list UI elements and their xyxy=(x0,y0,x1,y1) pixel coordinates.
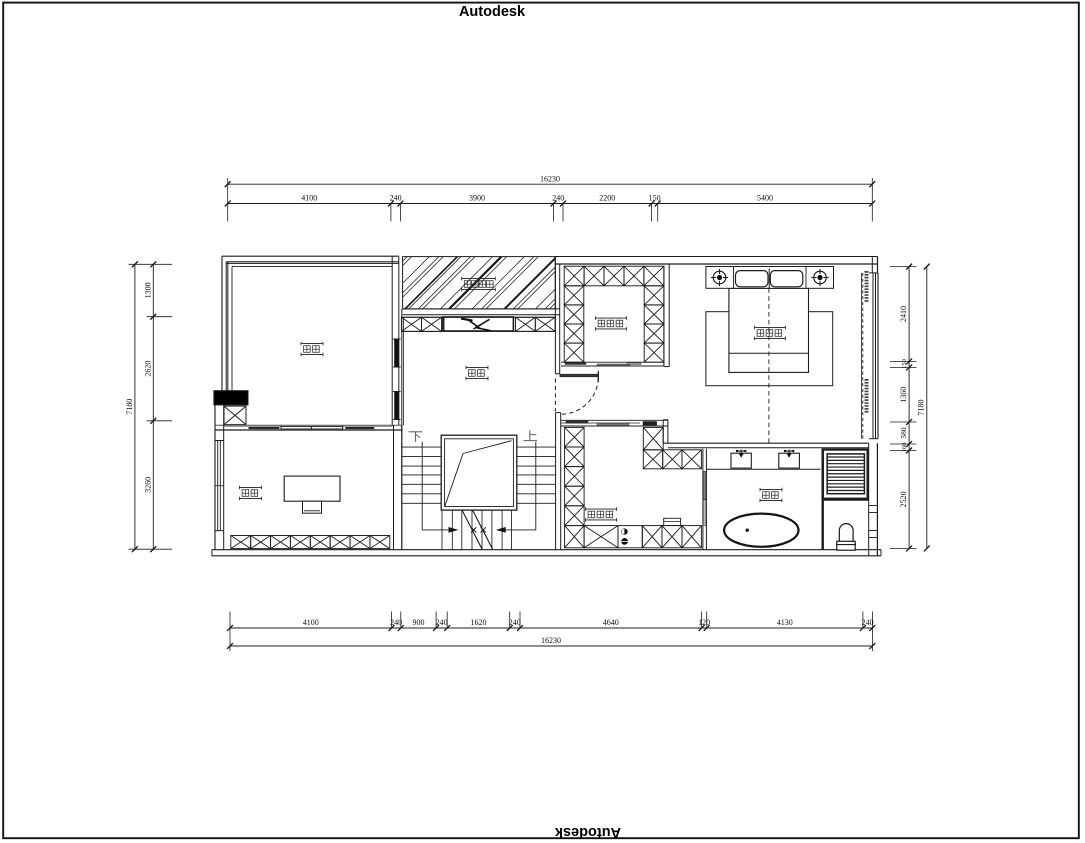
svg-text:580: 580 xyxy=(899,427,908,439)
svg-text:2410: 2410 xyxy=(899,306,908,322)
svg-text:240: 240 xyxy=(390,618,402,627)
svg-text:4100: 4100 xyxy=(303,618,319,627)
svg-text:1620: 1620 xyxy=(471,618,487,627)
svg-text:150: 150 xyxy=(901,359,908,369)
svg-text:7180: 7180 xyxy=(916,400,925,416)
svg-text:7180: 7180 xyxy=(125,399,134,415)
svg-text:120: 120 xyxy=(698,618,710,627)
svg-text:240: 240 xyxy=(436,618,448,627)
svg-text:150: 150 xyxy=(649,194,661,203)
svg-text:900: 900 xyxy=(413,618,425,627)
svg-text:240: 240 xyxy=(390,194,402,203)
svg-text:160: 160 xyxy=(901,443,908,453)
svg-text:16230: 16230 xyxy=(541,636,561,645)
svg-text:4100: 4100 xyxy=(301,194,317,203)
svg-text:Autodesk: Autodesk xyxy=(554,824,621,840)
svg-text:2200: 2200 xyxy=(599,194,615,203)
svg-text:1360: 1360 xyxy=(899,387,908,403)
svg-text:3900: 3900 xyxy=(469,194,485,203)
svg-text:4130: 4130 xyxy=(777,618,793,627)
svg-text:3260: 3260 xyxy=(143,477,152,493)
svg-text:2520: 2520 xyxy=(899,491,908,507)
svg-text:240: 240 xyxy=(552,194,564,203)
svg-text:240: 240 xyxy=(862,618,874,627)
svg-text:16230: 16230 xyxy=(540,174,560,183)
svg-text:2620: 2620 xyxy=(143,361,152,377)
svg-text:1300: 1300 xyxy=(143,282,152,298)
svg-text:4640: 4640 xyxy=(603,618,619,627)
svg-text:5400: 5400 xyxy=(757,194,773,203)
svg-text:Autodesk: Autodesk xyxy=(459,4,526,20)
svg-text:240: 240 xyxy=(509,618,521,627)
